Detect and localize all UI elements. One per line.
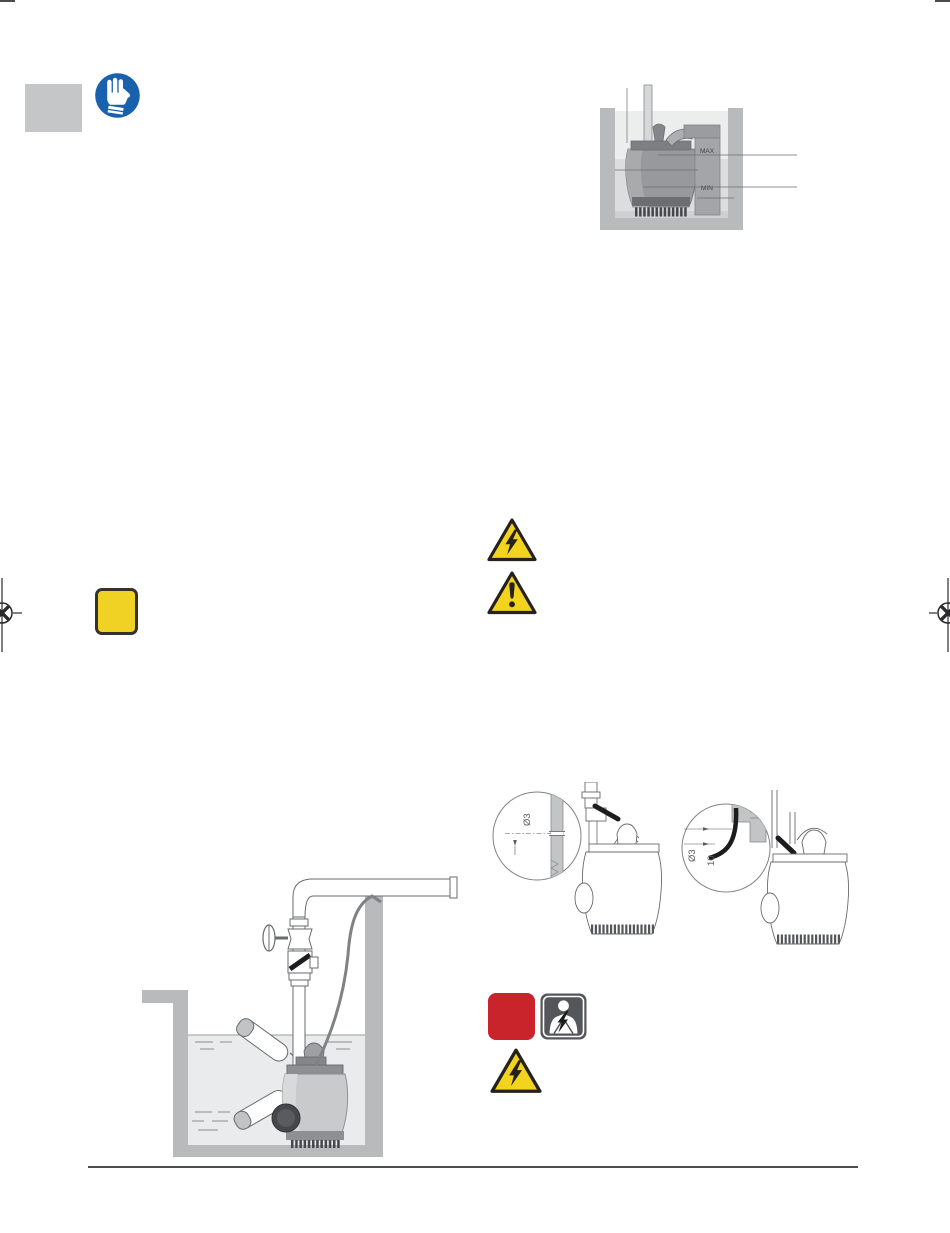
check-valve [288,951,318,973]
figure-vent-hole-details: Ø3 [485,782,875,962]
danger-square-icon [488,993,535,1040]
detail-circle-pipe-hole: Ø3 [493,792,581,882]
max-level-label: MAX [700,148,715,155]
protective-gloves-icon [94,72,141,119]
trim-mark-top-right [935,0,950,2]
registration-mark-right [928,575,950,655]
figure-sump-levels: MAX MIN [598,83,798,233]
min-level-label: MIN [701,185,713,192]
gap-distance-label: 10 [706,855,717,866]
registration-mark-left [0,575,24,655]
trim-mark-top-left [0,0,15,2]
figure-installation [100,865,465,1160]
gate-valve [263,925,312,951]
footer-rule [88,1166,858,1168]
note-square-icon [95,588,138,635]
manual-page: MAX MIN [0,0,950,1233]
hole-diameter-label: Ø3 [522,813,533,826]
general-warning-icon [486,569,538,617]
discharge-pipe [644,85,652,143]
electric-shock-person-icon [540,993,587,1040]
pump-drawing-right [761,790,849,944]
pump-drawing-left [575,782,662,934]
electrical-hazard-icon [486,516,538,564]
hose-diameter-label: Ø3 [687,849,698,862]
detail-circle-hose-gap: Ø3 10 [682,804,771,892]
chapter-tab [25,84,82,132]
electrical-hazard-icon [489,1046,543,1096]
